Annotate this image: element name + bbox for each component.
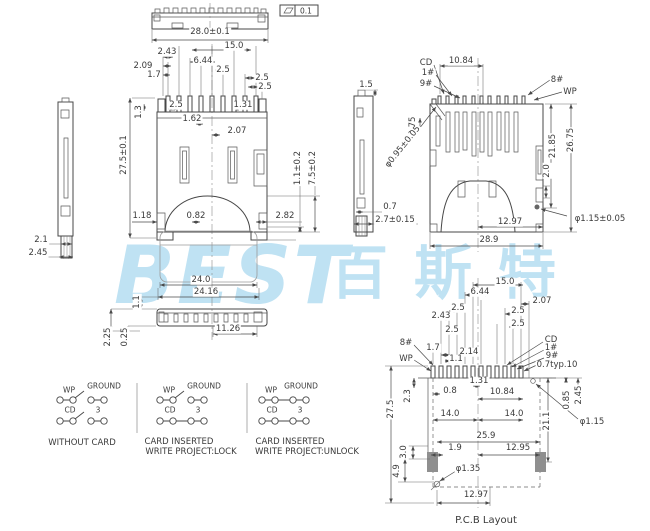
dim-label: 1.7 (425, 344, 441, 353)
dim-label: 28.0±0.1 (189, 28, 231, 37)
dim-label: φ0.95±0.05 (383, 124, 423, 170)
dim-label: 1.1±0.2 (294, 150, 303, 186)
pin-label-8: 8# (550, 76, 565, 85)
dim-label: 0.85 (563, 390, 572, 411)
dim-label: 10.84 (489, 388, 515, 397)
dim-label: 2.7±0.15 (374, 216, 416, 225)
dim-label: 0.25 (121, 327, 130, 348)
dim-label: 6.44 (470, 288, 491, 297)
dim-label: 2.5 (510, 307, 526, 316)
dim-label: 2.43 (157, 48, 178, 57)
dim-label: 2.0 (543, 163, 552, 179)
switch-caption: WITHOUT CARD (47, 439, 117, 448)
dim-label: 14.0 (504, 410, 525, 419)
pcb-layout-title: P.C.B Layout (454, 516, 518, 526)
dim-label: 25.9 (476, 432, 497, 441)
pin-label-8: 8# (399, 339, 414, 348)
dim-label: 12.95 (505, 444, 531, 453)
switch-label-ground: GROUND (186, 382, 222, 390)
dim-label: 27.5±0.1 (120, 134, 129, 176)
dim-label: 24.16 (193, 288, 219, 297)
dim-label: 2.5 (510, 320, 526, 329)
pin-label-cd: CD (419, 59, 433, 68)
dim-label: 6.44 (193, 57, 214, 66)
dim-label: 2.5 (257, 83, 273, 92)
dim-label: 21.85 (549, 133, 558, 159)
dim-label: 2.5 (450, 304, 466, 313)
dim-label: 2.5 (168, 101, 184, 110)
dim-label: 11.26 (215, 325, 241, 334)
dim-label: 2.43 (431, 312, 452, 321)
switch-label-cd: CD (265, 406, 278, 414)
pin-label-1: 1# (421, 69, 436, 78)
dim-label: 1.18 (132, 212, 153, 221)
switch-label-cd: CD (63, 406, 76, 414)
dim-label: 1.31 (233, 101, 254, 110)
dim-label: 0.82 (186, 212, 207, 221)
dim-label: 1.3 (135, 104, 144, 120)
dim-label: 2.5 (444, 326, 460, 335)
dim-label: 21.1 (543, 411, 552, 432)
dim-label: φ1.35 (455, 465, 482, 474)
switch-caption: WRITE PROJECT:UNLOCK (254, 448, 360, 457)
dim-label: 10.84 (448, 57, 474, 66)
dim-label: 1.9 (447, 444, 463, 453)
dim-label: 15.0 (224, 42, 245, 51)
dim-label: 2.82 (275, 212, 296, 221)
dim-label: 2.07 (227, 127, 248, 136)
switch-label-ground: GROUND (86, 382, 122, 390)
dim-label: 1.62 (182, 115, 203, 124)
dim-label: 3.0 (400, 444, 409, 460)
dim-label: 2.5 (215, 66, 231, 75)
technical-drawing-sheet: BEST 百斯特 (0, 0, 650, 531)
dim-label: 1.5 (358, 81, 374, 90)
dim-label: 2.3 (404, 388, 413, 404)
dim-label: 2.25 (104, 327, 113, 348)
dim-label: 15.0 (495, 278, 516, 287)
dim-label: 2.45 (28, 249, 49, 258)
switch-label-3: 3 (195, 406, 202, 414)
dim-label: 1.7 (146, 71, 162, 80)
switch-label-wp: WP (264, 386, 278, 394)
pin-label-wp: WP (398, 355, 414, 364)
dim-label: 12.97 (497, 218, 523, 227)
switch-label-3: 3 (297, 406, 304, 414)
pin-label-wp: WP (562, 88, 578, 97)
dim-label: 4.9 (393, 463, 402, 479)
dim-label: φ1.15 (579, 418, 606, 427)
switch-caption: CARD INSERTED (144, 438, 215, 447)
dim-label: 14.0 (440, 410, 461, 419)
dim-label: 2.1 (33, 236, 49, 245)
dim-label: 0.8 (442, 387, 458, 396)
dimension-labels: 28.0±0.1 0.1 15.0 2.43 2.09 1.7 6.44 2.5… (0, 0, 650, 531)
dim-label: 1.1 (133, 294, 142, 310)
switch-caption: WRITE PROJECT:LOCK (144, 448, 237, 457)
switch-label-ground: GROUND (283, 382, 319, 390)
dim-label: 26.75 (567, 127, 576, 153)
pin-label-9: 9# (419, 80, 434, 89)
dim-label: φ1.15±0.05 (574, 215, 627, 224)
flatness-value: 0.1 (299, 7, 313, 15)
dim-label: 1.1 (448, 355, 464, 364)
dim-label: 27.5 (387, 399, 396, 420)
dim-label: 2.07 (532, 297, 553, 306)
dim-label: 7.5±0.2 (309, 150, 318, 186)
dim-label: 12.97 (463, 491, 489, 500)
dim-label: 28.9 (479, 236, 500, 245)
dim-label: 24.0 (191, 276, 212, 285)
switch-label-wp: WP (62, 386, 76, 394)
switch-label-3: 3 (95, 406, 102, 414)
switch-label-wp: WP (162, 386, 176, 394)
dim-label: 0.7typ.10 (536, 361, 579, 370)
dim-label: 1.31 (469, 377, 490, 386)
dim-label: 0.7 (382, 203, 398, 212)
switch-label-cd: CD (163, 406, 176, 414)
dim-label: 2.45 (575, 385, 584, 406)
switch-caption: CARD INSERTED (255, 438, 326, 447)
